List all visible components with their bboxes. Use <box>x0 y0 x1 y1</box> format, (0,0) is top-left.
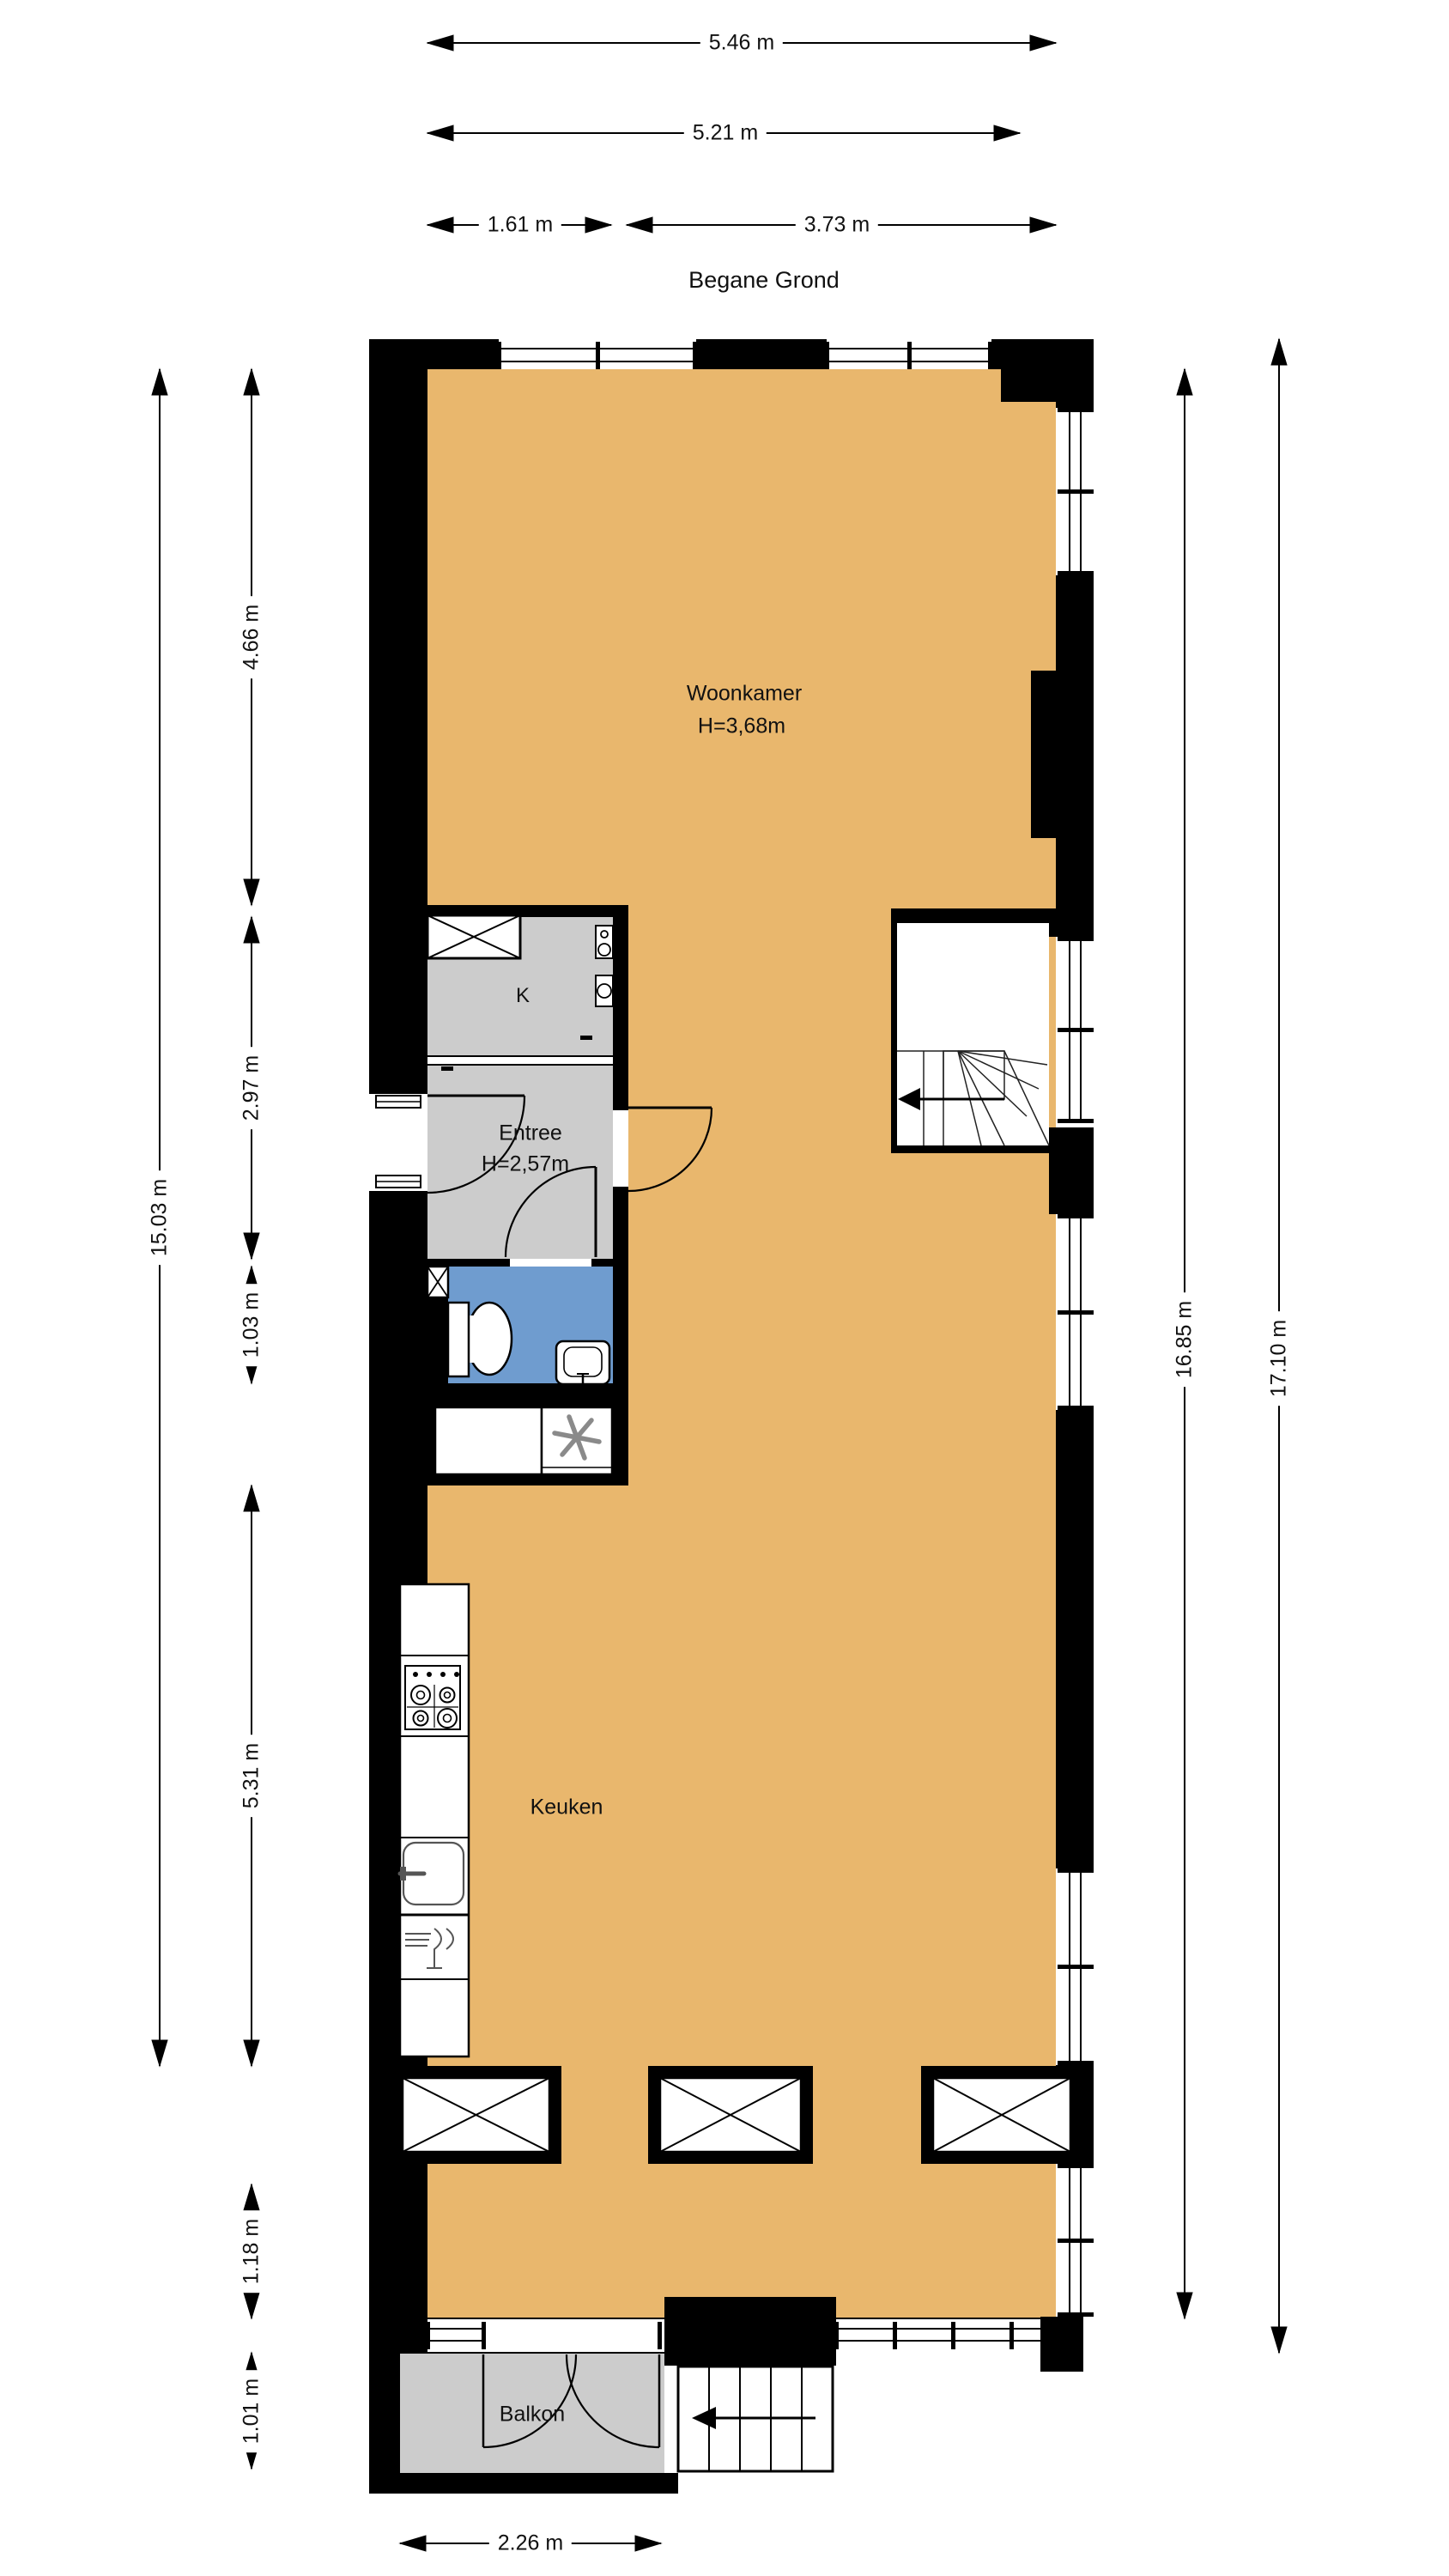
shaft-x-icon-rear-left <box>391 2066 561 2164</box>
wall-corner-se <box>1040 2317 1083 2372</box>
wall-balkon-bottom <box>369 2473 678 2494</box>
window-icon-top-1 <box>497 342 697 369</box>
wall-stair-left <box>891 923 897 1153</box>
front-door-sidelight-bottom <box>376 1176 421 1188</box>
room-label-kast: K <box>516 985 530 1007</box>
wall-utility-bottom <box>427 1474 628 1485</box>
wall-rear-center-block <box>664 2297 836 2366</box>
dim-label-103: 1.03 m <box>239 1284 264 1366</box>
wall-right-3 <box>1056 838 1094 908</box>
dim-label-118: 1.18 m <box>239 2210 264 2293</box>
window-icon-right-3 <box>1058 1214 1094 1410</box>
front-door-sidelight-top <box>376 1096 421 1108</box>
wall-top-mid <box>696 339 827 369</box>
dim-label-521: 5.21 m <box>684 120 767 146</box>
staircase-interior <box>897 923 1049 1145</box>
wall-right-pier-2 <box>1049 1127 1094 1214</box>
wall-bath-bottom <box>427 1383 628 1407</box>
window-icon-right-5 <box>1058 2164 1094 2317</box>
window-icon-right-1 <box>1058 408 1094 575</box>
window-icon-right-2 <box>1058 937 1094 1123</box>
dim-label-1685: 16.85 m <box>1172 1292 1197 1387</box>
dim-label-531: 5.31 m <box>239 1735 264 1817</box>
wall-left-upper <box>369 369 427 1094</box>
staircase-exterior <box>678 2366 833 2471</box>
wall-right-4 <box>1056 1410 1094 1868</box>
room-height-woonkamer: H=3,68m <box>698 714 785 738</box>
room-label-woonkamer: Woonkamer <box>687 682 802 706</box>
floor-plan-drawing <box>0 0 1449 2576</box>
room-label-keuken: Keuken <box>530 1795 603 1820</box>
dim-label-226: 2.26 m <box>489 2530 572 2556</box>
shaft-x-icon-bathroom <box>427 1267 448 1297</box>
dim-label-1710: 17.10 m <box>1266 1311 1292 1406</box>
wall-right-chimney <box>1031 671 1094 838</box>
switch-mark-2 <box>441 1066 453 1071</box>
wall-top-right <box>991 339 1094 369</box>
shaft-x-icon-rear-right <box>921 2066 1094 2164</box>
dim-label-297: 2.97 m <box>239 1047 264 1129</box>
toilet-icon <box>448 1303 512 1376</box>
dim-label-466: 4.66 m <box>239 596 264 678</box>
boiler-icon-1 <box>596 926 613 958</box>
shaft-x-icon-kast <box>427 915 520 958</box>
window-icon-top-2 <box>825 342 992 369</box>
dim-label-373: 3.73 m <box>796 212 878 238</box>
room-height-entree: H=2,57m <box>482 1152 569 1176</box>
wall-bath-top-left <box>427 1259 506 1267</box>
window-icon-right-4 <box>1058 1868 1094 2065</box>
wall-utility-left <box>427 1407 435 1474</box>
wall-entree-right-upper <box>613 917 628 1106</box>
dim-label-546: 5.46 m <box>700 30 783 56</box>
floor-plan: Begane Grond 5.46 m 5.21 m 1.61 m 3.73 m… <box>0 0 1449 2576</box>
wall-balkon-left <box>369 2353 400 2494</box>
utility-cupboards <box>435 1407 612 1474</box>
wall-bath-top-right <box>596 1259 628 1267</box>
washbasin-icon <box>556 1341 609 1384</box>
page-title: Begane Grond <box>680 267 848 295</box>
wall-right-2 <box>1056 575 1094 671</box>
dim-label-161: 1.61 m <box>479 212 561 238</box>
dim-label-101: 1.01 m <box>239 2370 264 2452</box>
wall-bath-left <box>427 1297 448 1383</box>
wall-stair-bottom <box>897 1145 1049 1153</box>
bathroom-door-opening <box>506 1259 596 1267</box>
boiler-icon-2 <box>596 975 613 1006</box>
woonkamer-door-opening <box>613 1106 628 1191</box>
wall-utility-right <box>612 1407 628 1474</box>
switch-mark-1 <box>580 1036 592 1040</box>
kitchen-counter <box>400 1584 469 2057</box>
shaft-x-icon-rear-center <box>648 2066 813 2164</box>
kitchen-sink-icon <box>400 1843 464 1905</box>
wall-stair-pier <box>1049 908 1094 937</box>
room-label-entree: Entree <box>499 1121 562 1145</box>
wall-top-left <box>369 339 499 369</box>
room-label-balkon: Balkon <box>500 2403 565 2427</box>
utility-cupboard-left <box>435 1407 542 1474</box>
wall-right-1 <box>1056 369 1094 408</box>
dim-label-1503: 15.03 m <box>147 1170 173 1265</box>
